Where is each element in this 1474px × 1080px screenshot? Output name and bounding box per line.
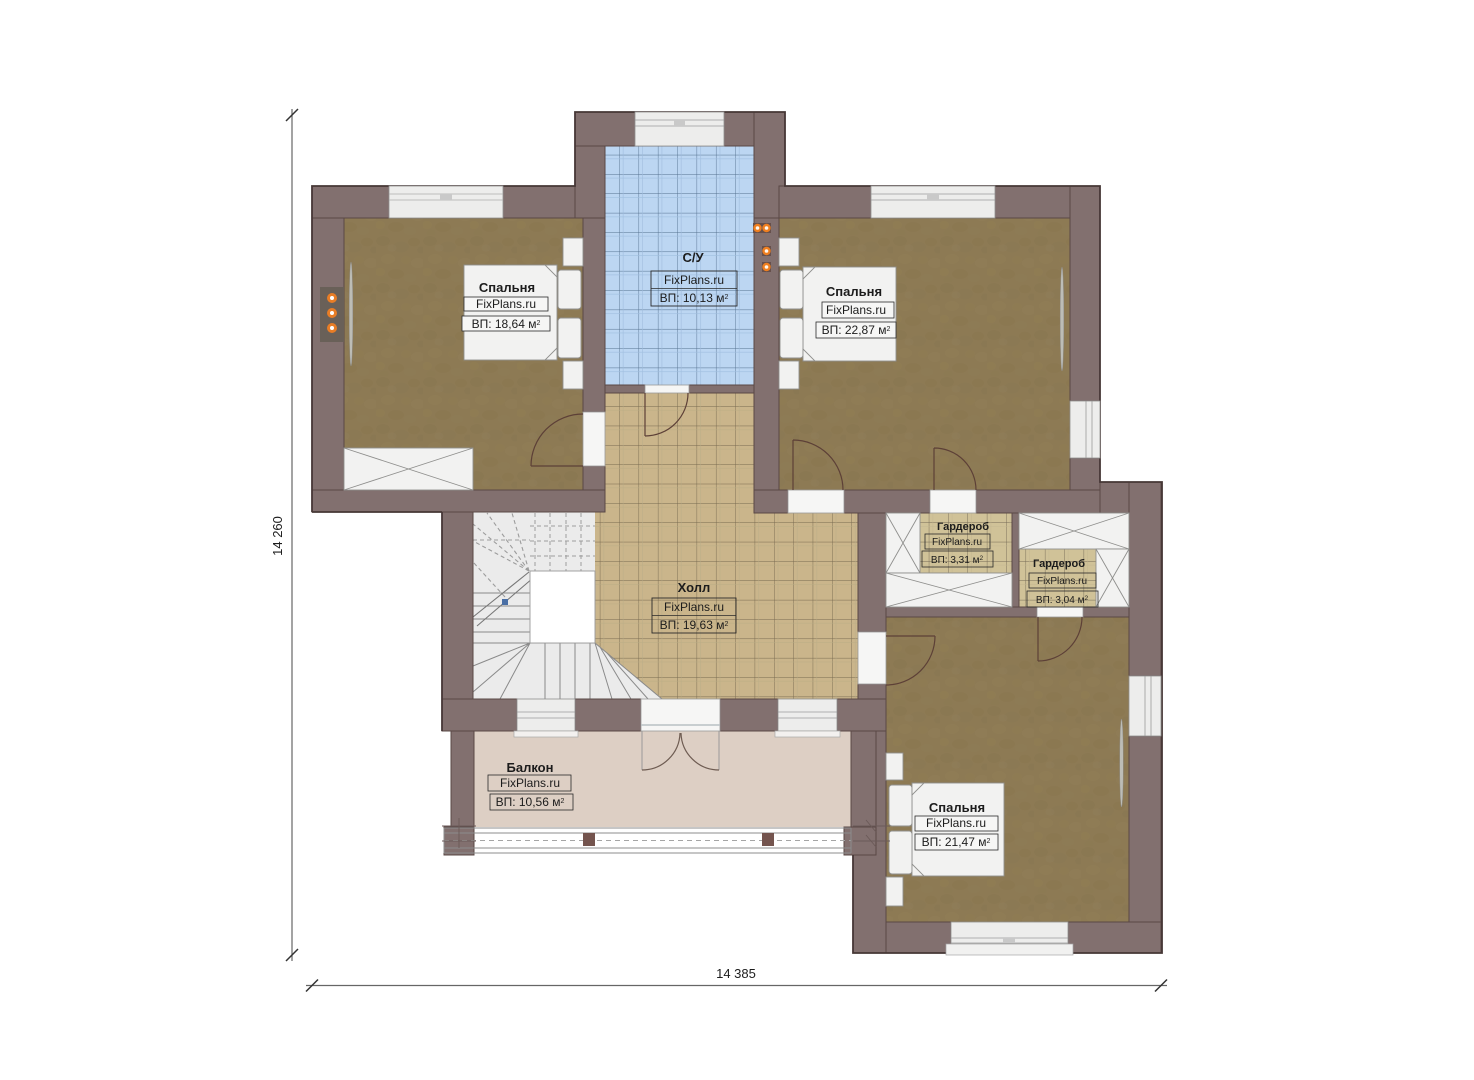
svg-text:14 260: 14 260: [270, 516, 285, 556]
svg-text:Спальня: Спальня: [479, 280, 535, 295]
svg-text:Гардероб: Гардероб: [937, 521, 989, 533]
svg-text:FixPlans.ru: FixPlans.ru: [664, 273, 724, 287]
svg-text:FixPlans.ru: FixPlans.ru: [1037, 576, 1087, 587]
svg-text:ВП: 18,64 м2: ВП: 18,64 м2: [472, 317, 541, 331]
svg-text:14 385: 14 385: [716, 966, 756, 981]
svg-text:ВП: 3,31 м2: ВП: 3,31 м2: [931, 555, 984, 566]
svg-text:Спальня: Спальня: [929, 800, 985, 815]
svg-text:ВП: 21,47 м2: ВП: 21,47 м2: [922, 835, 991, 849]
svg-text:FixPlans.ru: FixPlans.ru: [664, 600, 724, 614]
svg-text:FixPlans.ru: FixPlans.ru: [476, 297, 536, 311]
svg-text:Балкон: Балкон: [507, 760, 554, 775]
svg-text:С/У: С/У: [682, 250, 704, 265]
svg-text:ВП: 22,87 м2: ВП: 22,87 м2: [822, 323, 891, 337]
svg-text:ВП: 19,63 м2: ВП: 19,63 м2: [660, 618, 729, 632]
svg-text:FixPlans.ru: FixPlans.ru: [926, 816, 986, 830]
svg-text:FixPlans.ru: FixPlans.ru: [500, 776, 560, 790]
svg-text:Спальня: Спальня: [826, 284, 882, 299]
svg-text:FixPlans.ru: FixPlans.ru: [826, 303, 886, 317]
svg-text:ВП: 10,56 м2: ВП: 10,56 м2: [496, 795, 565, 809]
svg-text:Гардероб: Гардероб: [1033, 558, 1085, 570]
svg-text:ВП: 3,04 м2: ВП: 3,04 м2: [1036, 595, 1089, 606]
svg-text:Холл: Холл: [678, 580, 711, 595]
svg-text:ВП: 10,13 м2: ВП: 10,13 м2: [660, 291, 729, 305]
svg-text:FixPlans.ru: FixPlans.ru: [932, 537, 982, 548]
